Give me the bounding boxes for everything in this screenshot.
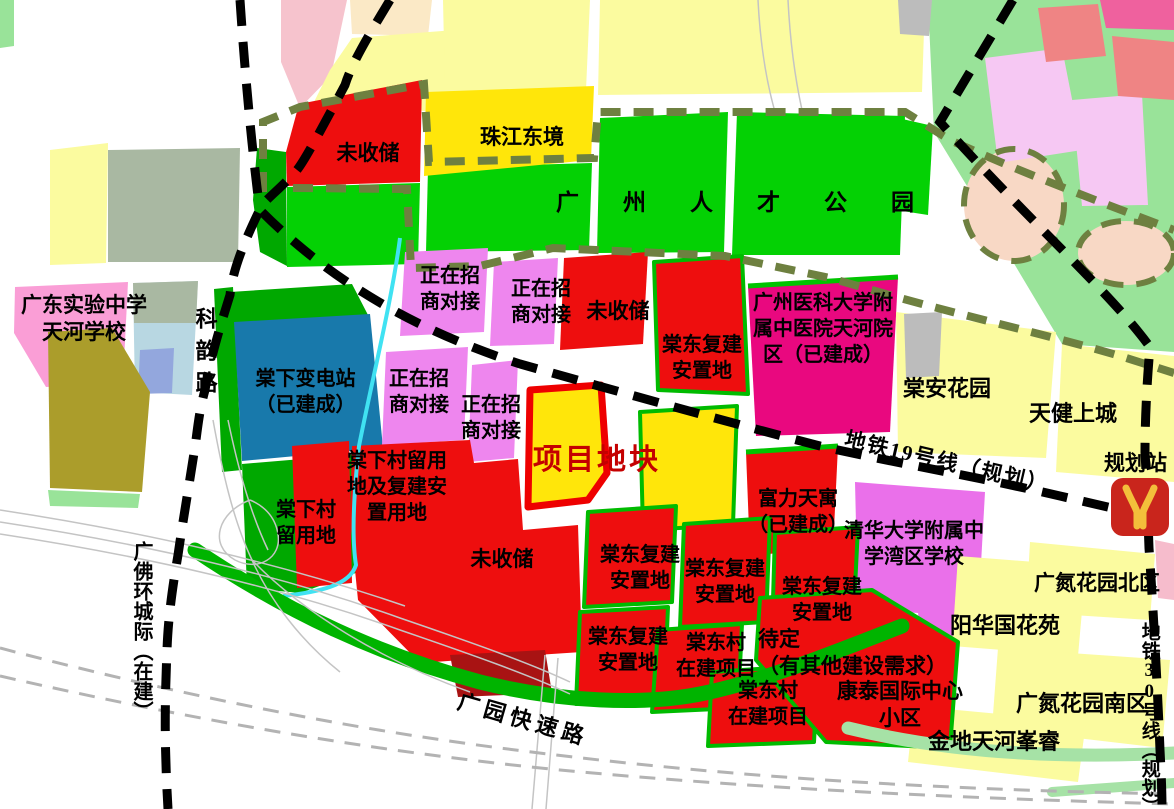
parcel: [426, 163, 592, 252]
parcel: [898, 0, 932, 36]
resettlement-parcel: [680, 518, 770, 627]
planning-map: 广东实验中学 天河学校 科韵路 未收储 珠江东境 广州人才公园 正在招 商对接 …: [0, 0, 1174, 809]
parcel: [896, 118, 933, 215]
tianjian-parcel: [1056, 344, 1174, 482]
parcel: [108, 148, 240, 262]
negotiating-parcel: [382, 347, 468, 445]
guangzhou-metro-logo-icon: [1111, 478, 1169, 536]
resettlement-parcel: [654, 256, 748, 394]
parcel: [133, 281, 198, 323]
parcel: [253, 148, 287, 266]
parcel: [0, 0, 14, 48]
unacquired-parcel: [560, 252, 648, 350]
parcel: [48, 490, 140, 508]
parcel: [1112, 36, 1174, 100]
parcel: [732, 112, 905, 255]
parcel: [597, 112, 728, 253]
parcel: [50, 143, 108, 265]
reserved-land-parcel: [292, 441, 352, 588]
parcel: [1072, 94, 1148, 206]
resettlement-parcel: [584, 506, 676, 607]
hospital-parcel: [748, 277, 898, 436]
map-graphics: [0, 0, 1174, 809]
project-site-parcel: [528, 385, 607, 507]
parcel: [904, 312, 942, 378]
parcel: [1100, 0, 1174, 30]
rail-line: [240, 0, 258, 196]
negotiating-parcel: [468, 360, 518, 462]
parcel: [1038, 4, 1106, 62]
negotiating-parcel: [490, 258, 558, 346]
parcel: [443, 0, 590, 92]
gdn-north-parcel: [1026, 542, 1155, 620]
parcel: [1155, 540, 1174, 600]
